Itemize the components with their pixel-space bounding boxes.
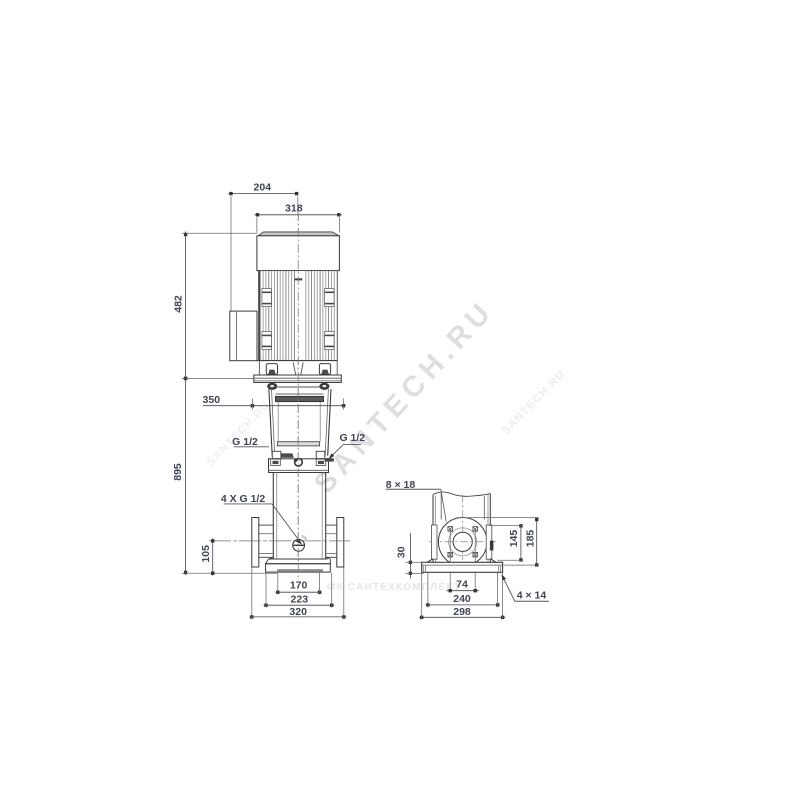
svg-text:320: 320 [289, 606, 307, 618]
svg-text:4 × 14: 4 × 14 [517, 589, 547, 601]
svg-text:30: 30 [396, 546, 408, 558]
svg-text:482: 482 [172, 295, 184, 313]
svg-text:185: 185 [525, 530, 537, 548]
svg-text:105: 105 [200, 545, 212, 563]
svg-text:SANTECH.RU: SANTECH.RU [205, 399, 273, 469]
svg-text:318: 318 [285, 203, 303, 215]
svg-text:170: 170 [290, 580, 308, 592]
svg-text:G 1/2: G 1/2 [232, 436, 258, 448]
svg-text:240: 240 [453, 593, 471, 605]
svg-text:G 1/2: G 1/2 [339, 432, 365, 444]
svg-text:895: 895 [172, 463, 184, 481]
svg-text:4 X G 1/2: 4 X G 1/2 [221, 493, 266, 505]
svg-text:204: 204 [254, 181, 272, 193]
svg-text:74: 74 [456, 578, 468, 590]
svg-text:145: 145 [508, 530, 520, 548]
svg-text:ФК САНТЕХКОМПЛЕКТ: ФК САНТЕХКОМПЛЕКТ [327, 582, 461, 593]
svg-text:298: 298 [453, 606, 471, 618]
svg-text:SANTECH.RU: SANTECH.RU [500, 368, 568, 437]
svg-text:223: 223 [291, 593, 309, 605]
svg-text:350: 350 [203, 394, 221, 406]
